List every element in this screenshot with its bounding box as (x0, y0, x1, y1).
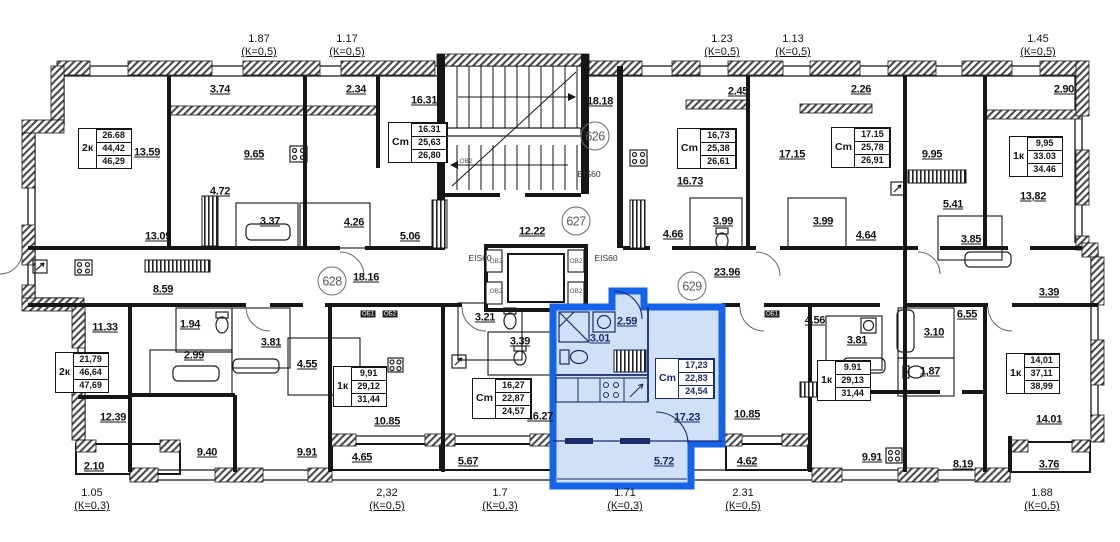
apartment-areas: 9.9129,1331,44 (835, 361, 870, 400)
apartment-area-value: 29,12 (351, 380, 387, 394)
unit-number-circle[interactable]: 627 (562, 207, 591, 236)
apartment-area-value: 9,91 (351, 367, 387, 381)
apartment-info-box: 1к14,0137,1138,99 (1006, 353, 1060, 394)
dimension-value: 2,32 (376, 487, 397, 499)
facade-dimension: 1.23(К=0,5) (704, 33, 739, 59)
facade-dimension: 1.45(К=0,5) (1020, 33, 1055, 59)
room-area-label: 3.85 (961, 235, 981, 246)
dimension-coefficient: (К=0,3) (482, 500, 517, 513)
room-area-label: 4.65 (352, 453, 372, 464)
apartment-info-box: Cm16,2722,8724,57 (472, 378, 532, 419)
room-area-label: 3.39 (510, 337, 530, 348)
apartment-type-label: 2к (56, 353, 73, 392)
facade-dimension: 1.7(К=0,3) (482, 487, 517, 513)
apartment-type-label: 1к (334, 367, 351, 406)
apartment-area-value: 25,38 (700, 142, 736, 156)
room-area-label: 2.34 (346, 85, 366, 96)
facade-dimension: 1.05(К=0,3) (74, 487, 109, 513)
wall-tag-label: EIS60 (468, 254, 491, 263)
apartment-info-box: Cm17.1525,7826,91 (831, 127, 891, 168)
apartment-area-value: 26.68 (96, 129, 132, 143)
room-area-label: 3.37 (260, 217, 280, 228)
apartment-info-box: 2к21,7946,6447,69 (55, 352, 109, 393)
apartment-area-value: 17,23 (678, 359, 714, 373)
room-area-label: 2.26 (851, 85, 871, 96)
room-area-label: 3.99 (813, 217, 833, 228)
apartment-area-value: 25,63 (411, 136, 447, 150)
room-area-label: 2.90 (1054, 85, 1074, 96)
room-area-label: 4.55 (297, 360, 317, 371)
apartment-areas: 17.1525,7826,91 (855, 128, 890, 167)
apartment-type-label: 1к (818, 361, 835, 400)
room-area-label: 8.19 (953, 460, 973, 471)
apartment-area-value: 17.15 (854, 128, 890, 142)
apartment-type-label: Cm (473, 379, 496, 418)
dimension-value: 1.13 (782, 33, 803, 45)
labels-layer: 1.87(К=0,5)1.17(К=0,5)1.23(К=0,5)1.13(К=… (0, 0, 1120, 542)
dimension-value: 1.71 (614, 487, 635, 499)
room-area-label: 5.72 (654, 457, 674, 468)
apartment-type-label: Cm (656, 359, 679, 398)
apartment-area-value: 26,61 (700, 155, 736, 169)
wall-tag-label: ОБ1 (765, 311, 780, 318)
apartment-area-value: 29,13 (835, 374, 871, 388)
apartment-areas: 21,7946,6447,69 (73, 353, 108, 392)
apartment-areas: 17,2322,8324,54 (679, 359, 714, 398)
room-area-label: 4.64 (856, 231, 876, 242)
dimension-coefficient: (К=0,5) (369, 500, 404, 513)
facade-dimension: 1.71(К=0,3) (607, 487, 642, 513)
facade-dimension: 1.13(К=0,5) (775, 33, 810, 59)
room-area-label: 5.06 (400, 232, 420, 243)
room-area-label: 3.81 (261, 338, 281, 349)
dimension-coefficient: (К=0,5) (329, 46, 364, 59)
room-area-label: 17.23 (674, 413, 700, 424)
wall-tag-label: ОВ2 (489, 289, 502, 296)
wall-tag-label: ОВ2 (569, 289, 582, 296)
apartment-info-box: Cm16.3125,6326,80 (388, 122, 448, 163)
apartment-area-value: 31,44 (351, 393, 387, 407)
room-area-label: 18.16 (353, 273, 379, 284)
apartment-area-value: 9.91 (835, 361, 871, 375)
apartment-area-value: 24,57 (495, 405, 531, 419)
unit-number-circle[interactable]: 629 (678, 272, 707, 301)
apartment-area-value: 47,69 (73, 379, 109, 393)
room-area-label: 3.74 (210, 85, 230, 96)
room-area-label: 16.73 (677, 177, 703, 188)
dimension-coefficient: (К=0,5) (775, 46, 810, 59)
apartment-area-value: 46,64 (73, 366, 109, 380)
room-area-label: 6.55 (957, 310, 977, 321)
dimension-coefficient: (К=0,5) (1024, 500, 1059, 513)
dimension-coefficient: (К=0,3) (74, 500, 109, 513)
apartment-area-value: 33.03 (1027, 150, 1063, 164)
room-area-label: 23.96 (714, 268, 740, 279)
dimension-coefficient: (К=0,3) (607, 500, 642, 513)
apartment-area-value: 22,87 (495, 392, 531, 406)
apartment-area-value: 21,79 (73, 353, 109, 367)
apartment-type-label: Cm (389, 123, 412, 162)
room-area-label: 8.59 (153, 285, 173, 296)
dimension-value: 1.17 (336, 33, 357, 45)
room-area-label: 3.01 (590, 334, 610, 345)
apartment-area-value: 16,73 (700, 129, 736, 143)
apartment-area-value: 31,44 (835, 387, 871, 401)
wall-tag-label: ОВ2 (459, 159, 472, 166)
facade-dimension: 2,32(К=0,5) (369, 487, 404, 513)
room-area-label: 9.95 (922, 150, 942, 161)
dimension-value: 1.05 (81, 487, 102, 499)
wall-tag-label: ОБ1 (361, 311, 376, 318)
room-area-label: 3.10 (924, 328, 944, 339)
floor-plan-canvas: 1.87(К=0,5)1.17(К=0,5)1.23(К=0,5)1.13(К=… (0, 0, 1120, 542)
apartment-area-value: 44,42 (96, 142, 132, 156)
apartment-area-value: 22,83 (678, 372, 714, 386)
room-area-label: 13.59 (134, 148, 160, 159)
room-area-label: 12.39 (100, 413, 126, 424)
dimension-coefficient: (К=0,5) (241, 46, 276, 59)
dimension-value: 1.88 (1031, 487, 1052, 499)
apartment-type-label: 1к (1010, 137, 1027, 176)
room-area-label: 14.01 (1036, 415, 1062, 426)
apartment-areas: 16,2722,8724,57 (496, 379, 531, 418)
apartment-areas: 16.3125,6326,80 (412, 123, 447, 162)
room-area-label: 13.09 (145, 232, 171, 243)
apartment-area-value: 9,95 (1027, 137, 1063, 151)
room-area-label: 11.33 (92, 323, 117, 334)
apartment-areas: 26.6844,4246,29 (96, 129, 131, 168)
room-area-label: 13,82 (1020, 192, 1046, 203)
dimension-value: 1.45 (1027, 33, 1048, 45)
room-area-label: 4.62 (737, 457, 757, 468)
apartment-area-value: 26,91 (854, 154, 890, 168)
wall-tag-label: ОВ2 (569, 259, 582, 266)
room-area-label: 9.91 (297, 448, 317, 459)
apartment-info-box: Cm17,2322,8324,54 (655, 358, 715, 399)
apartment-area-value: 25,78 (854, 141, 890, 155)
room-area-label: 4.56 (805, 316, 825, 327)
room-area-label: 4.72 (210, 187, 230, 198)
apartment-info-box: 1к9,9533.0334.46 (1009, 136, 1063, 177)
room-area-label: 2.10 (84, 462, 104, 473)
dimension-coefficient: (К=0,5) (1020, 46, 1055, 59)
room-area-label: 2.45 (728, 87, 748, 98)
room-area-label: 9.91 (862, 453, 882, 464)
room-area-label: 4.66 (663, 230, 683, 241)
apartment-area-value: 34.46 (1027, 163, 1063, 177)
apartment-areas: 9,9533.0334.46 (1027, 137, 1062, 176)
room-area-label: 3.39 (1039, 288, 1059, 299)
apartment-info-box: 1к9,9129,1231,44 (333, 366, 387, 407)
apartment-type-label: 2к (79, 129, 96, 168)
apartment-type-label: Cm (678, 129, 701, 168)
dimension-value: 2.31 (732, 487, 753, 499)
room-area-label: 3.99 (713, 217, 733, 228)
room-area-label: 1.94 (180, 320, 200, 331)
room-area-label: 3.81 (847, 336, 867, 347)
apartment-area-value: 26,80 (411, 149, 447, 163)
room-area-label: 16.31 (411, 96, 437, 107)
wall-tag-label: ОВ2 (489, 259, 502, 266)
apartment-info-box: 2к26.6844,4246,29 (78, 128, 132, 169)
dimension-coefficient: (К=0,5) (704, 46, 739, 59)
dimension-coefficient: (К=0,5) (725, 500, 760, 513)
apartment-area-value: 24,54 (678, 385, 714, 399)
room-area-label: 2.59 (617, 317, 637, 328)
room-area-label: 9.65 (244, 150, 264, 161)
apartment-area-value: 38,99 (1024, 380, 1060, 394)
apartment-areas: 16,7325,3826,61 (701, 129, 736, 168)
wall-tag-label: ОБ2 (383, 311, 398, 318)
room-area-label: 3.76 (1039, 460, 1059, 471)
room-area-label: 12.22 (519, 227, 545, 238)
unit-number-circle[interactable]: 628 (318, 267, 347, 296)
room-area-label: 2.99 (184, 351, 204, 362)
apartment-info-box: 1к9.9129,1331,44 (817, 360, 871, 401)
unit-number-circle[interactable]: 626 (581, 122, 610, 151)
dimension-value: 1.7 (492, 487, 507, 499)
dimension-value: 1.23 (711, 33, 732, 45)
apartment-areas: 14,0137,1138,99 (1024, 354, 1059, 393)
apartment-area-value: 16.31 (411, 123, 447, 137)
facade-dimension: 1.17(К=0,5) (329, 33, 364, 59)
room-area-label: 4.26 (344, 218, 364, 229)
apartment-areas: 9,9129,1231,44 (351, 367, 386, 406)
apartment-area-value: 46,29 (96, 155, 132, 169)
room-area-label: 5.41 (943, 200, 963, 211)
facade-dimension: 1.88(К=0,5) (1024, 487, 1059, 513)
room-area-label: 18.18 (587, 97, 613, 108)
apartment-area-value: 14,01 (1024, 354, 1060, 368)
wall-tag-label: EIS60 (594, 254, 617, 263)
apartment-type-label: 1к (1007, 354, 1024, 393)
apartment-type-label: Cm (832, 128, 855, 167)
room-area-label: 1,87 (920, 367, 940, 378)
facade-dimension: 2.31(К=0,5) (725, 487, 760, 513)
wall-tag-label: EIS60 (577, 170, 600, 179)
room-area-label: 10.85 (734, 410, 760, 421)
facade-dimension: 1.87(К=0,5) (241, 33, 276, 59)
room-area-label: 9.40 (197, 448, 217, 459)
apartment-area-value: 37,11 (1024, 367, 1060, 381)
apartment-area-value: 16,27 (495, 379, 531, 393)
apartment-info-box: Cm16,7325,3826,61 (677, 128, 737, 169)
room-area-label: 10.85 (374, 417, 400, 428)
dimension-value: 1.87 (248, 33, 269, 45)
room-area-label: 5.67 (458, 457, 478, 468)
room-area-label: 3.21 (475, 313, 495, 324)
room-area-label: 17.15 (779, 150, 805, 161)
